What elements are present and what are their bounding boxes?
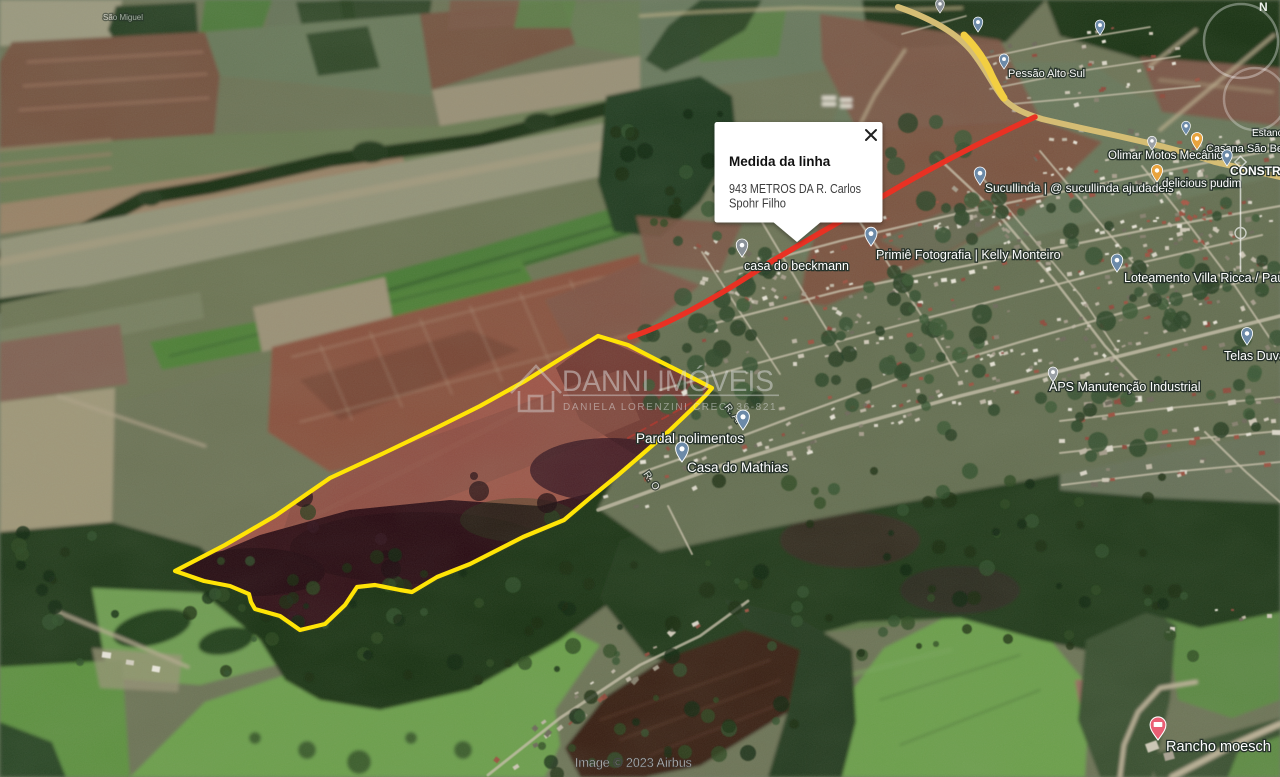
svg-text:DANNI IMÓVEIS: DANNI IMÓVEIS: [562, 365, 774, 398]
svg-text:943 METROS DA R. Carlos: 943 METROS DA R. Carlos: [729, 181, 861, 196]
svg-text:Telas Duva: Telas Duva: [1224, 349, 1280, 363]
svg-text:APS Manutenção Industrial: APS Manutenção Industrial: [1049, 380, 1200, 394]
svg-text:Casana São Bento: Casana São Bento: [1206, 143, 1280, 155]
svg-text:delicious pudim: delicious pudim: [1162, 178, 1241, 190]
svg-text:São Miguel: São Miguel: [103, 13, 143, 22]
svg-text:Pardal polimentos: Pardal polimentos: [636, 431, 744, 446]
svg-text:Casa do Mathias: Casa do Mathias: [687, 460, 789, 475]
svg-text:Primiê Fotografia | Kelly Mont: Primiê Fotografia | Kelly Monteiro: [876, 248, 1061, 262]
svg-text:Pessão Alto Sul: Pessão Alto Sul: [1008, 68, 1085, 80]
svg-text:Medida da linha: Medida da linha: [729, 154, 831, 169]
svg-text:Spohr Filho: Spohr Filho: [729, 196, 786, 211]
svg-text:Image © 2023 Airbus: Image © 2023 Airbus: [575, 756, 692, 770]
svg-text:Loteamento Villa Ricca / Pauma: Loteamento Villa Ricca / Pauma Co: [1124, 271, 1280, 285]
svg-text:Rancho moesch: Rancho moesch: [1166, 739, 1271, 755]
svg-text:casa do beckmann: casa do beckmann: [744, 259, 849, 273]
svg-text:CONSTRUIM: CONSTRUIM: [1230, 164, 1280, 178]
svg-text:Sucullinda | @ sucullinda ajud: Sucullinda | @ sucullinda ajudadeis: [985, 181, 1174, 195]
svg-text:N: N: [1259, 0, 1268, 14]
